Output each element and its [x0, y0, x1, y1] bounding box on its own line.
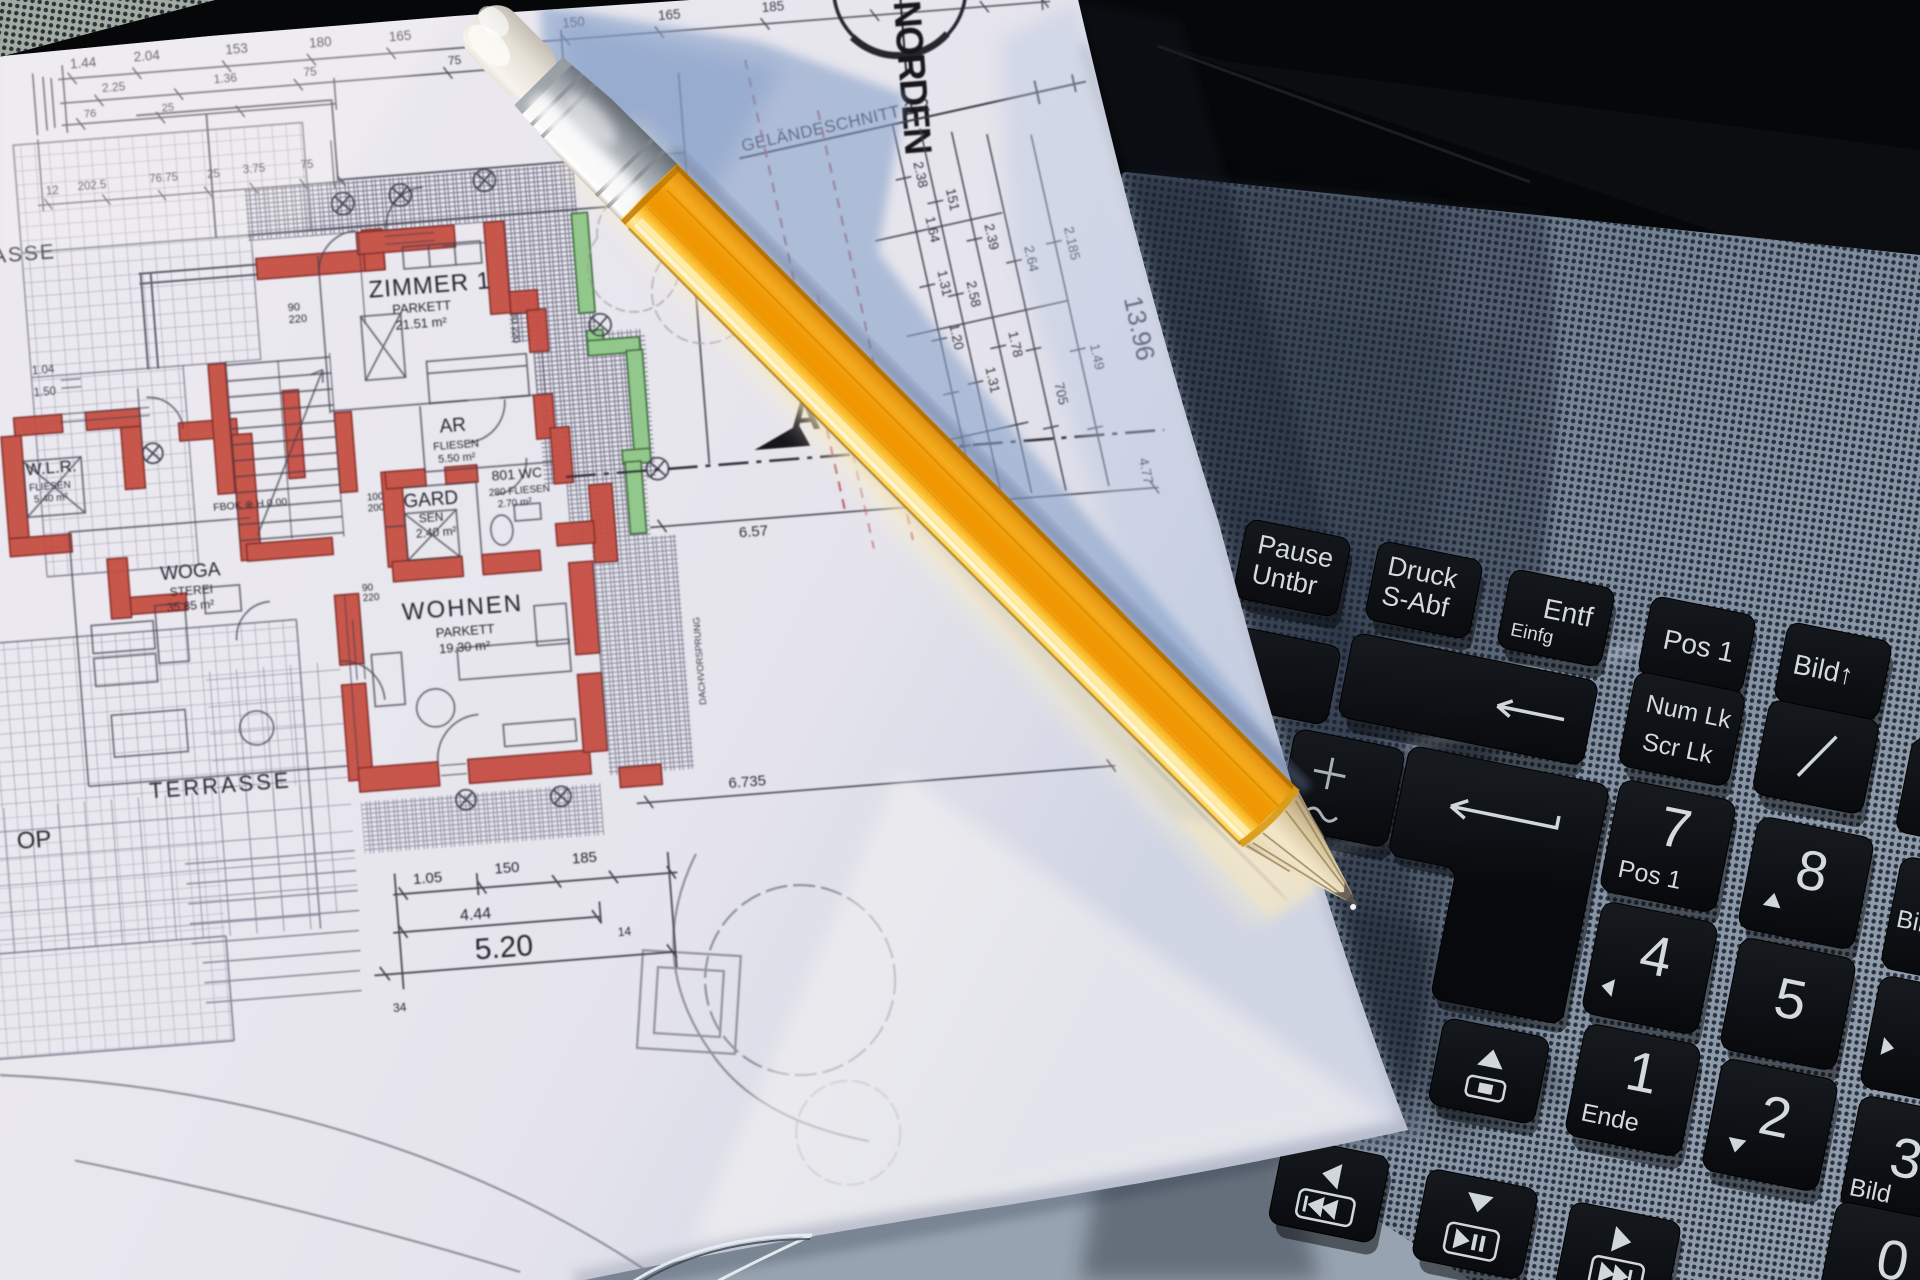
svg-text:220: 220 [288, 313, 307, 326]
svg-text:150: 150 [494, 859, 520, 878]
svg-text:OP: OP [16, 825, 53, 855]
svg-text:34: 34 [393, 1000, 408, 1015]
svg-text:W.L.R.: W.L.R. [25, 456, 77, 479]
svg-text:165: 165 [657, 7, 681, 24]
svg-text:185: 185 [761, 0, 785, 15]
svg-text:75: 75 [447, 53, 462, 68]
svg-text:SEN: SEN [418, 510, 444, 526]
svg-text:AR: AR [439, 415, 467, 438]
svg-text:1.05: 1.05 [412, 869, 442, 888]
svg-text:GARD: GARD [403, 487, 459, 512]
svg-text:90: 90 [287, 301, 300, 314]
svg-text:6.57: 6.57 [738, 522, 768, 541]
svg-text:14: 14 [617, 924, 632, 939]
svg-text:1.50: 1.50 [33, 386, 56, 400]
svg-text:185: 185 [571, 849, 597, 868]
svg-text:220: 220 [362, 592, 380, 604]
svg-text:6.735: 6.735 [728, 772, 767, 792]
svg-text:5.20: 5.20 [473, 929, 534, 966]
svg-text:4.44: 4.44 [459, 905, 491, 924]
svg-text:200: 200 [367, 502, 385, 514]
svg-text:1.04: 1.04 [32, 364, 56, 378]
